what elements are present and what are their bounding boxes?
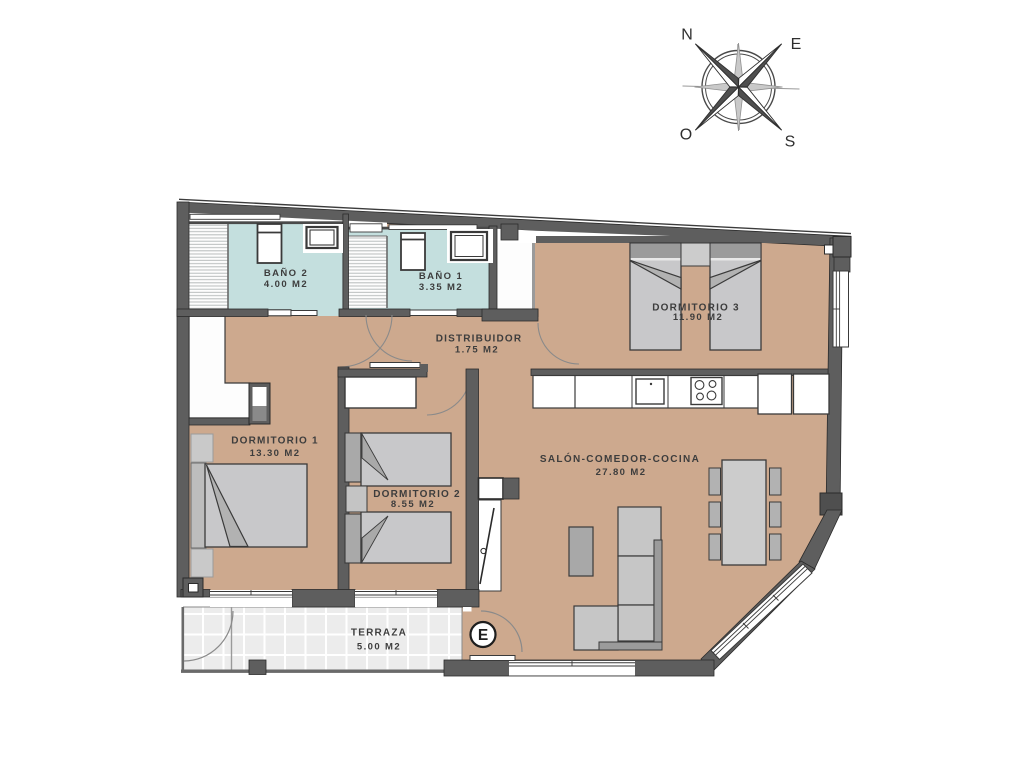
svg-text:5.00 M2: 5.00 M2	[357, 642, 401, 653]
svg-text:O: O	[680, 127, 692, 144]
svg-text:DISTRIBUIDOR: DISTRIBUIDOR	[436, 334, 523, 345]
svg-text:13.30 M2: 13.30 M2	[250, 448, 301, 459]
svg-text:1.75 M2: 1.75 M2	[455, 345, 499, 356]
svg-text:DORMITORIO 1: DORMITORIO 1	[231, 436, 319, 447]
svg-text:8.55 M2: 8.55 M2	[391, 499, 435, 510]
svg-text:27.80 M2: 27.80 M2	[596, 467, 647, 478]
svg-text:E: E	[478, 627, 488, 644]
svg-text:11.90 M2: 11.90 M2	[673, 312, 723, 323]
svg-text:SALÓN-COMEDOR-COCINA: SALÓN-COMEDOR-COCINA	[540, 452, 700, 465]
svg-text:TERRAZA: TERRAZA	[351, 628, 407, 639]
svg-text:4.00 M2: 4.00 M2	[264, 279, 308, 290]
svg-text:N: N	[681, 27, 693, 44]
svg-text:BAÑO 2: BAÑO 2	[264, 268, 308, 279]
svg-text:BAÑO 1: BAÑO 1	[419, 271, 463, 282]
svg-text:E: E	[791, 36, 802, 53]
svg-text:S: S	[785, 134, 796, 151]
svg-text:3.35 M2: 3.35 M2	[419, 282, 463, 293]
